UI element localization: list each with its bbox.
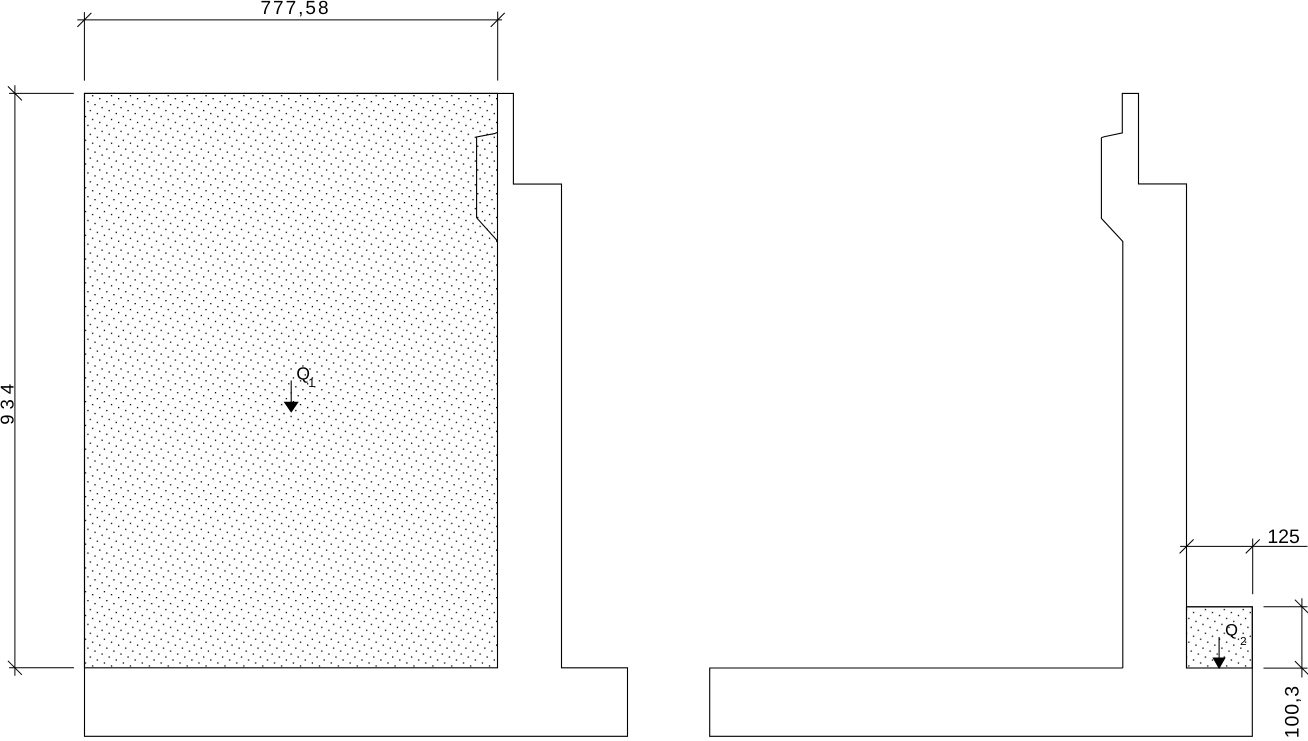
svg-text:934: 934 bbox=[0, 379, 17, 425]
svg-text:1: 1 bbox=[308, 376, 315, 390]
svg-text:777,58: 777,58 bbox=[260, 0, 330, 19]
svg-text:Q: Q bbox=[1225, 622, 1238, 640]
svg-text:100,3: 100,3 bbox=[1282, 685, 1304, 738]
svg-text:2: 2 bbox=[1240, 636, 1246, 648]
svg-text:125: 125 bbox=[1267, 526, 1300, 548]
